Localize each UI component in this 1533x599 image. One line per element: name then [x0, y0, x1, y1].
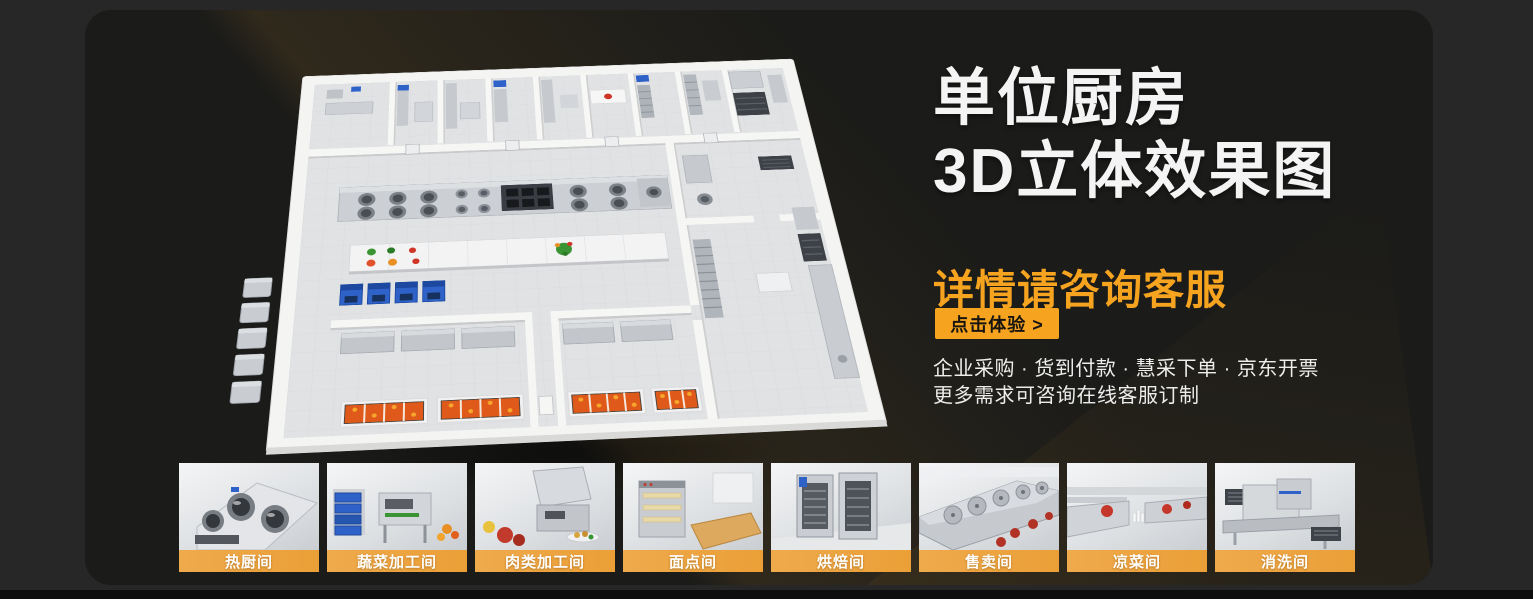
gallery-item-cold-dish[interactable]: 凉菜间	[1067, 463, 1207, 572]
service-trolleys	[230, 278, 273, 404]
thumbnail-label: 凉菜间	[1067, 550, 1207, 572]
thumbnail-label: 肉类加工间	[475, 550, 615, 572]
title-line-2: 3D立体效果图	[933, 137, 1336, 206]
floorplan-graphic	[217, 54, 897, 462]
pastry-room-image	[623, 463, 763, 550]
banner: 单位厨房3D立体效果图 详情请咨询客服 点击体验 > 企业采购 · 货到付款 ·…	[0, 0, 1533, 599]
washing-room-image	[1215, 463, 1355, 550]
description-line-1: 企业采购 · 货到付款 · 慧采下单 · 京东开票	[933, 358, 1319, 380]
bottom-strip	[0, 590, 1533, 599]
room-gallery: 热厨间 蔬菜加	[179, 463, 1355, 572]
gallery-item-vegetable-processing[interactable]: 蔬菜加工间	[327, 463, 467, 572]
thumbnail-label: 消洗间	[1215, 550, 1355, 572]
gallery-item-pastry[interactable]: 面点间	[623, 463, 763, 572]
thumbnail-label: 售卖间	[919, 550, 1059, 572]
sales-room-image	[919, 463, 1059, 550]
hero-panel: 单位厨房3D立体效果图 详情请咨询客服 点击体验 > 企业采购 · 货到付款 ·…	[85, 10, 1433, 585]
hot-kitchen-image	[179, 463, 319, 550]
gallery-item-washing[interactable]: 消洗间	[1215, 463, 1355, 572]
cold-dish-room-image	[1067, 463, 1207, 550]
thumbnail-label: 面点间	[623, 550, 763, 572]
gallery-item-baking[interactable]: 烘焙间	[771, 463, 911, 572]
vegetable-processing-image	[327, 463, 467, 550]
gallery-item-sales[interactable]: 售卖间	[919, 463, 1059, 572]
description: 企业采购 · 货到付款 · 慧采下单 · 京东开票更多需求可咨询在线客服订制	[933, 356, 1319, 410]
thumbnail-label: 烘焙间	[771, 550, 911, 572]
thumbnail-label: 热厨间	[179, 550, 319, 572]
meat-processing-image	[475, 463, 615, 550]
page-title: 单位厨房3D立体效果图	[933, 62, 1336, 208]
gallery-item-hot-kitchen[interactable]: 热厨间	[179, 463, 319, 572]
baking-room-image	[771, 463, 911, 550]
gallery-item-meat-processing[interactable]: 肉类加工间	[475, 463, 615, 572]
cta-button[interactable]: 点击体验 >	[935, 308, 1059, 339]
subtitle: 详情请咨询客服	[933, 256, 1227, 316]
title-line-1: 单位厨房	[933, 64, 1189, 133]
description-line-2: 更多需求可咨询在线客服订制	[933, 385, 1200, 407]
kitchen-3d-floorplan	[217, 54, 897, 462]
thumbnail-label: 蔬菜加工间	[327, 550, 467, 572]
